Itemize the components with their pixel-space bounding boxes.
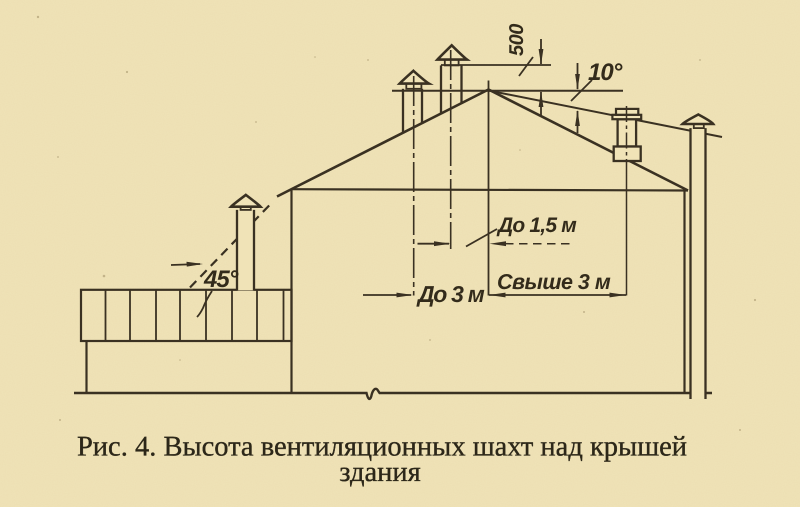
svg-text:Свыше 3 м: Свыше 3 м	[497, 270, 611, 294]
svg-text:500: 500	[506, 24, 528, 56]
svg-text:здания: здания	[339, 457, 421, 488]
svg-text:45°: 45°	[203, 266, 239, 293]
svg-text:До 1,5 м: До 1,5 м	[496, 214, 577, 237]
svg-text:10°: 10°	[588, 59, 623, 86]
svg-text:До 3 м: До 3 м	[416, 281, 485, 307]
